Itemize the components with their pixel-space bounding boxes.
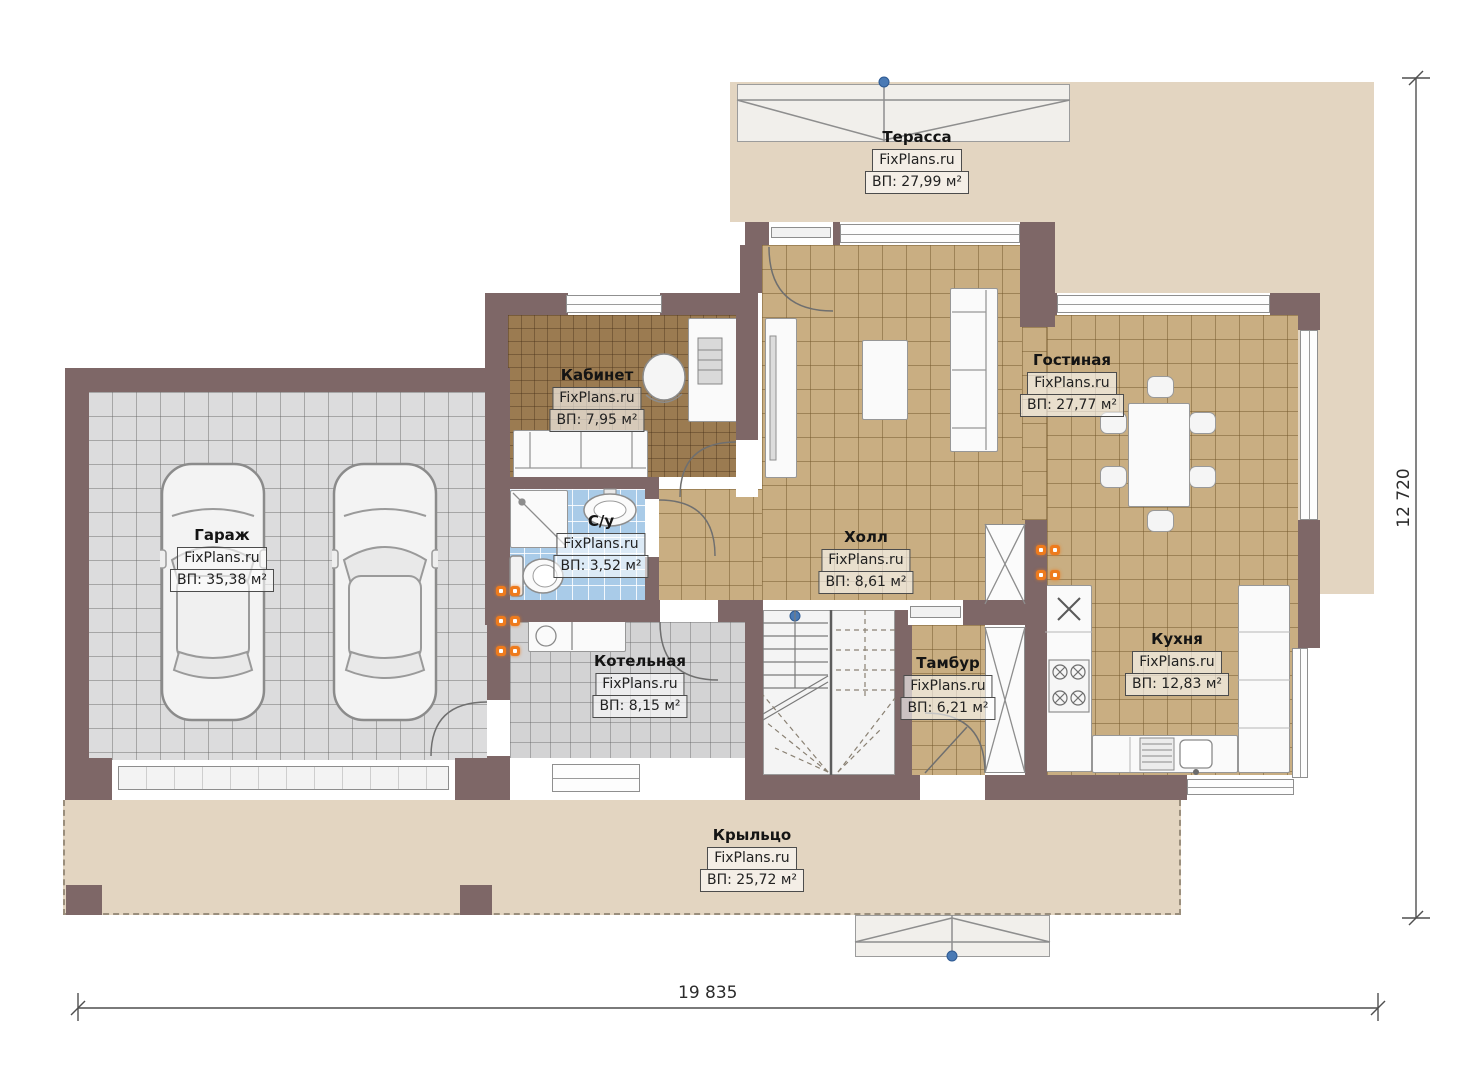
door-opening: [487, 700, 510, 756]
wall: [745, 600, 763, 775]
radiator-icon: [510, 616, 520, 626]
room-label-bathroom: С/у FixPlans.ru ВП: 3,52 м²: [553, 512, 648, 578]
wall: [645, 489, 659, 499]
room-area: ВП: 27,77 м²: [1020, 394, 1124, 417]
wall: [65, 758, 112, 800]
dining-chair: [1147, 376, 1174, 398]
wall: [1025, 520, 1047, 790]
door-leaf: [910, 606, 961, 618]
wall: [745, 775, 922, 800]
room-area: ВП: 12,83 м²: [1125, 673, 1229, 696]
room-label-porch: Крыльцо FixPlans.ru ВП: 25,72 м²: [700, 826, 804, 892]
boiler-unit: [528, 620, 626, 652]
radiator-icon: [1036, 545, 1046, 555]
room-label-boiler: Котельная FixPlans.ru ВП: 8,15 м²: [592, 652, 687, 718]
window: [1300, 330, 1318, 520]
window: [840, 224, 1020, 243]
watermark: FixPlans.ru: [707, 847, 796, 870]
wall: [736, 315, 758, 440]
wall: [1298, 520, 1320, 648]
tv-stand: [765, 318, 797, 478]
room-name: Котельная: [592, 652, 687, 670]
watermark: FixPlans.ru: [552, 387, 641, 410]
dimension-height: 12 720: [1394, 468, 1414, 527]
room-label-vestibule: Тамбур FixPlans.ru ВП: 6,21 м²: [900, 654, 995, 720]
room-area: ВП: 35,38 м²: [170, 569, 274, 592]
watermark: FixPlans.ru: [177, 547, 266, 570]
room-name: Кухня: [1125, 630, 1229, 648]
dining-table: [1128, 403, 1190, 507]
wall: [485, 293, 568, 315]
dining-chair: [1100, 466, 1127, 488]
room-name: С/у: [553, 512, 648, 530]
wall: [485, 477, 659, 489]
radiator-icon: [496, 646, 506, 656]
porch-pillar: [460, 885, 492, 915]
window: [1057, 295, 1270, 313]
room-label-garage: Гараж FixPlans.ru ВП: 35,38 м²: [170, 526, 274, 592]
window-glazing: [1292, 648, 1308, 778]
wall: [455, 758, 510, 800]
watermark: FixPlans.ru: [1027, 372, 1116, 395]
radiator-icon: [496, 586, 506, 596]
corridor-floor: [657, 489, 762, 600]
room-label-terrace: Терасса FixPlans.ru ВП: 27,99 м²: [865, 128, 969, 194]
room-label-hall: Холл FixPlans.ru ВП: 8,61 м²: [818, 528, 913, 594]
room-area: ВП: 7,95 м²: [549, 409, 644, 432]
watermark: FixPlans.ru: [821, 549, 910, 572]
room-area: ВП: 8,15 м²: [592, 695, 687, 718]
window-glazing: [1187, 779, 1294, 795]
radiator-icon: [496, 616, 506, 626]
room-name: Гостиная: [1020, 351, 1124, 369]
room-label-office: Кабинет FixPlans.ru ВП: 7,95 м²: [549, 366, 644, 432]
watermark: FixPlans.ru: [556, 533, 645, 556]
door-opening: [736, 440, 758, 497]
room-area: ВП: 27,99 м²: [865, 171, 969, 194]
window: [566, 295, 662, 313]
canopy-bottom: [855, 915, 1050, 957]
wall: [985, 775, 1047, 800]
garage-floor: [88, 392, 488, 760]
wall: [833, 222, 840, 245]
room-name: Терасса: [865, 128, 969, 146]
coffee-table: [862, 340, 908, 420]
room-name: Крыльцо: [700, 826, 804, 844]
kitchen-counter-bottom: [1092, 735, 1238, 773]
watermark: FixPlans.ru: [1132, 651, 1221, 674]
room-area: ВП: 6,21 м²: [900, 697, 995, 720]
dimension-width: 19 835: [678, 983, 737, 1003]
room-label-kitchen: Кухня FixPlans.ru ВП: 12,83 м²: [1125, 630, 1229, 696]
staircase: [763, 610, 895, 775]
room-name: Тамбур: [900, 654, 995, 672]
radiator-icon: [510, 646, 520, 656]
room-name: Холл: [818, 528, 913, 546]
radiator-icon: [510, 586, 520, 596]
wall: [1020, 293, 1057, 315]
living-sofa: [950, 288, 998, 452]
garage-door: [118, 766, 449, 790]
radiator-icon: [1036, 570, 1046, 580]
wall: [1298, 315, 1320, 330]
porch-area: [63, 800, 1181, 915]
kitchen-counter-right: [1238, 585, 1290, 773]
room-name: Кабинет: [549, 366, 644, 384]
room-label-living: Гостиная FixPlans.ru ВП: 27,77 м²: [1020, 351, 1124, 417]
wardrobe-cabinet: [985, 524, 1025, 604]
wall: [65, 368, 510, 392]
dining-chair: [1147, 510, 1174, 532]
door-opening: [660, 600, 718, 622]
room-area: ВП: 25,72 м²: [700, 869, 804, 892]
radiator-icon: [1050, 545, 1060, 555]
radiator-icon: [1050, 570, 1060, 580]
watermark: FixPlans.ru: [903, 675, 992, 698]
dining-chair: [1189, 412, 1216, 434]
office-desk: [688, 318, 740, 422]
wall: [740, 245, 762, 293]
watermark: FixPlans.ru: [595, 673, 684, 696]
floor-plan: Терасса FixPlans.ru ВП: 27,99 м² Кабинет…: [0, 0, 1474, 1080]
wall: [1270, 293, 1320, 315]
kitchen-counter-left: [1045, 585, 1092, 772]
window: [552, 764, 640, 792]
door-leaf: [771, 227, 831, 238]
room-area: ВП: 8,61 м²: [818, 571, 913, 594]
wall: [660, 293, 758, 315]
wall: [1047, 775, 1187, 800]
wall: [485, 293, 508, 625]
wall: [65, 368, 89, 800]
door-opening: [920, 775, 985, 800]
dining-chair: [1189, 466, 1216, 488]
room-area: ВП: 3,52 м²: [553, 555, 648, 578]
watermark: FixPlans.ru: [872, 149, 961, 172]
room-name: Гараж: [170, 526, 274, 544]
porch-pillar: [66, 885, 102, 915]
wall: [745, 222, 769, 245]
